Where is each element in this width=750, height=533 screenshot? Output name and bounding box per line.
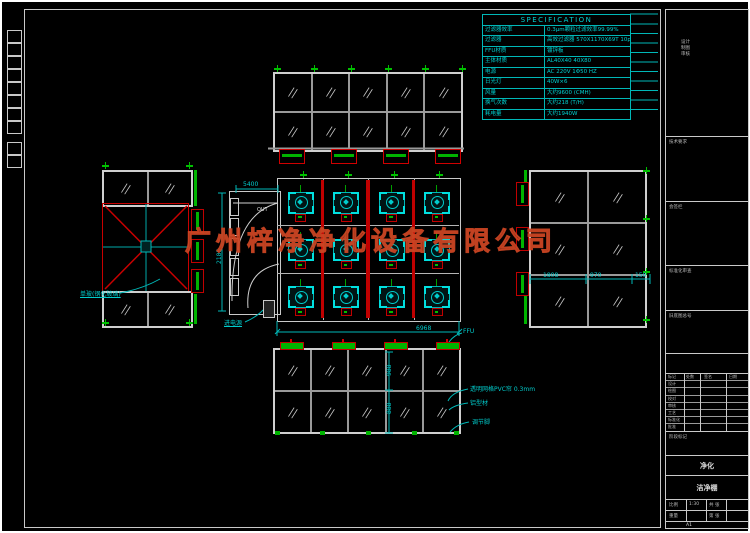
zone-marker [7,142,22,155]
spec-value: 0.3μm颗粒过滤效率99.99% [545,26,630,35]
glass-panel [350,113,386,150]
dim-bottom-v1: 988 [386,365,393,376]
leveling-foot [412,431,417,435]
ffu-unit [333,286,359,308]
ffu-top-bar [384,342,408,350]
light-fixture [341,308,352,316]
ffu-corner [424,206,432,214]
light-fixture [432,308,443,316]
ffu-corner [306,206,314,214]
revision-row-label: 绘图 [668,388,676,394]
revision-row-label: 审核 [668,403,676,409]
ffu-corner [442,286,450,294]
glass-panel [275,74,311,111]
glass-panel [350,74,386,111]
titleblock-label: 标准化审查 [669,268,692,274]
leveling-foot [454,431,459,435]
revision-row-label: 标准化 [668,417,680,423]
ffu-corner [288,206,296,214]
revision-col: 处数 [686,374,694,380]
door-pillar [263,300,275,318]
titleblock-cell: 共 张 [709,502,719,508]
green-tick [102,165,109,167]
green-tick [348,68,355,70]
green-tick [102,322,109,324]
spec-label: 过滤器效率 [483,26,545,35]
revision-col: 签名 [704,374,712,380]
annotation-aluminum-profile: 铝型材 [470,398,488,407]
glass-panel [149,293,192,326]
ffu-corner [379,300,387,308]
light-fixture [432,261,443,269]
ffu-corner [306,300,314,308]
light-fixture [386,261,397,269]
annotation-leveling-foot: 调节脚 [472,417,490,426]
green-tick [422,68,429,70]
spec-label: 电源 [483,68,545,77]
glass-panel [424,392,459,432]
ffu-elevation-unit [383,149,409,164]
glass-panel [531,276,587,326]
leveling-foot [320,431,325,435]
spec-label: 过滤器 [483,36,545,45]
glass-panel [312,392,347,432]
annotation-power-inlet: 进电源 [224,318,242,327]
company-watermark: 广州梓净净化设备有限公司 [185,221,557,258]
ffu-corner [351,192,359,200]
revision-col: 日期 [729,374,737,380]
ffu-corner [333,300,341,308]
light-fixture [295,308,306,316]
glass-panel [313,113,349,150]
spec-label: FFU材质 [483,47,545,56]
spec-label: 主体材质 [483,57,545,66]
titleblock-label: 技术要求 [669,139,687,145]
ffu-corner [424,300,432,308]
ffu-corner [397,300,405,308]
side-ffu-unit [516,272,529,296]
annotation-pvc-curtain: 透明网格PVC帘 0.3mm [470,384,535,393]
zone-marker [7,30,22,43]
ffu-corner [351,286,359,294]
glass-panel [349,392,384,432]
front-elevation-panels [273,72,463,152]
zone-marker [7,95,22,108]
ffu-unit [288,192,314,214]
titleblock-line: 审核 [681,51,690,57]
cad-screenshot: SPECIFICATION 过滤器效率0.3μm颗粒过滤效率99.99% 过滤器… [0,0,750,533]
spec-value: 大约218 (T/H) [545,99,630,108]
revision-row-label: 工艺 [668,410,676,416]
drawing-title: 洁净棚 [666,483,748,493]
ffu-corner [333,206,341,214]
ffu-unit [379,286,405,308]
spec-label: 耗电量 [483,110,545,119]
wall-section [524,292,527,324]
ffu-corner [442,206,450,214]
spec-label: 日光灯 [483,78,545,87]
ffu-corner [379,286,387,294]
glass-panel [388,74,424,111]
zone-marker [7,155,22,168]
spec-title: SPECIFICATION [483,15,630,26]
ffu-elevation-unit [331,149,357,164]
spec-value: 镀锌板 [545,47,630,56]
ffu-corner [351,206,359,214]
green-tick [391,174,398,176]
spec-value: 高效过滤器 570X1170X69T 10pc [545,36,630,45]
drawing-sheet: SPECIFICATION 过滤器效率0.3μm颗粒过滤效率99.99% 过滤器… [2,2,748,531]
glass-panel [349,350,384,390]
titleblock-cell: 重量 [669,513,678,519]
ffu-unit [379,192,405,214]
glass-panel [275,113,311,150]
ffu-corner [288,300,296,308]
specification-table: SPECIFICATION 过滤器效率0.3μm颗粒过滤效率99.99% 过滤器… [482,14,631,120]
left-elevation-top-panels [102,170,193,207]
vestibule-panel [230,198,239,216]
leveling-foot [366,431,371,435]
dim-plan-width: 6968 [416,325,431,332]
green-tick [186,165,193,167]
dim-vestibule-width: 5400 [243,181,258,188]
dim-bottom-v2: 888 [386,403,393,414]
annotation-ffu: FFU [463,328,474,335]
spec-label: 风量 [483,89,545,98]
left-elevation-x-brace-box [102,203,189,292]
title-block: 设计 制图 审核 技术要求 会签栏 标准化审查 旧底图总号 标记处数签名日期设计… [665,9,749,529]
light-fixture [386,308,397,316]
titleblock-cell: 1:30 [689,502,699,507]
side-ffu-unit [191,269,204,293]
green-tick [459,68,466,70]
green-tick [385,68,392,70]
zone-marker [7,121,22,134]
glass-panel [425,113,461,150]
leveling-foot [275,431,280,435]
ffu-corner [288,192,296,200]
glass-panel [589,276,645,326]
ffu-corner [351,300,359,308]
green-tick [643,319,650,321]
ffu-top-bar [280,342,304,350]
revision-col: 标记 [668,374,676,380]
green-tick [345,174,352,176]
label-out: OUT [257,207,268,213]
dim-right-3: 150 [635,272,646,279]
green-tick [300,174,307,176]
ffu-elevation-unit [279,149,305,164]
ffu-corner [379,192,387,200]
spec-value: AC 220V 1Φ50 HZ [545,68,630,77]
green-tick [311,68,318,70]
glass-panel [275,392,310,432]
ffu-unit [288,286,314,308]
green-tick [274,68,281,70]
glass-panel [149,172,192,205]
ffu-corner [442,192,450,200]
titleblock-label: 旧底图总号 [669,313,692,319]
light-fixture [295,261,306,269]
annotation-tempered-glass: 单玻(钢化玻璃) [80,289,121,298]
ffu-corner [379,206,387,214]
titleblock-mark: 净化 [666,461,748,471]
ffu-unit [424,286,450,308]
green-tick [436,174,443,176]
green-tick [643,170,650,172]
zone-marker [7,82,22,95]
green-tick [186,322,193,324]
ffu-unit [333,192,359,214]
ffu-corner [442,300,450,308]
rear-elevation-panels [273,348,461,434]
light-fixture [341,261,352,269]
spec-value: 大约1940W [545,110,630,119]
glass-panel [312,350,347,390]
dim-right-2: 970 [590,272,601,279]
titleblock-cell: 比例 [669,502,678,508]
spec-value: AL40X40 40X80 [545,57,630,66]
ffu-unit [424,192,450,214]
zone-marker [7,69,22,82]
green-tick [643,218,650,220]
glass-panel [275,350,310,390]
glass-panel [424,350,459,390]
ffu-elevation-unit [435,149,461,164]
vestibule-panel [230,278,239,296]
zone-marker [7,56,22,69]
spec-label: 换气次数 [483,99,545,108]
wall-section [194,294,197,324]
titleblock-cell: 第 张 [709,513,719,519]
titleblock-stage: 阶段标记 [669,434,687,440]
sheet-size: A1 [686,523,692,528]
zone-marker [7,43,22,56]
glass-panel [388,113,424,150]
vestibule-panel [230,258,239,276]
revision-row-label: 设计 [668,381,676,387]
wall-section [194,170,197,206]
glass-panel [531,172,587,222]
ffu-top-bar [436,342,460,350]
glass-panel [589,224,645,274]
glass-panel [589,172,645,222]
zone-marker [7,108,22,121]
ffu-top-bar [332,342,356,350]
ffu-corner [288,286,296,294]
titleblock-label: 会签栏 [669,204,683,210]
side-ffu-unit [516,182,529,206]
revision-row-label: 批准 [668,424,676,430]
spec-value: 大约9600 (CMH) [545,89,630,98]
ffu-corner [397,206,405,214]
spec-value: 40W×6 [545,78,630,87]
revision-row-label: 校对 [668,396,676,402]
glass-panel [104,172,147,205]
glass-panel [425,74,461,111]
dim-right-1: 1808 [543,272,558,279]
glass-panel [313,74,349,111]
